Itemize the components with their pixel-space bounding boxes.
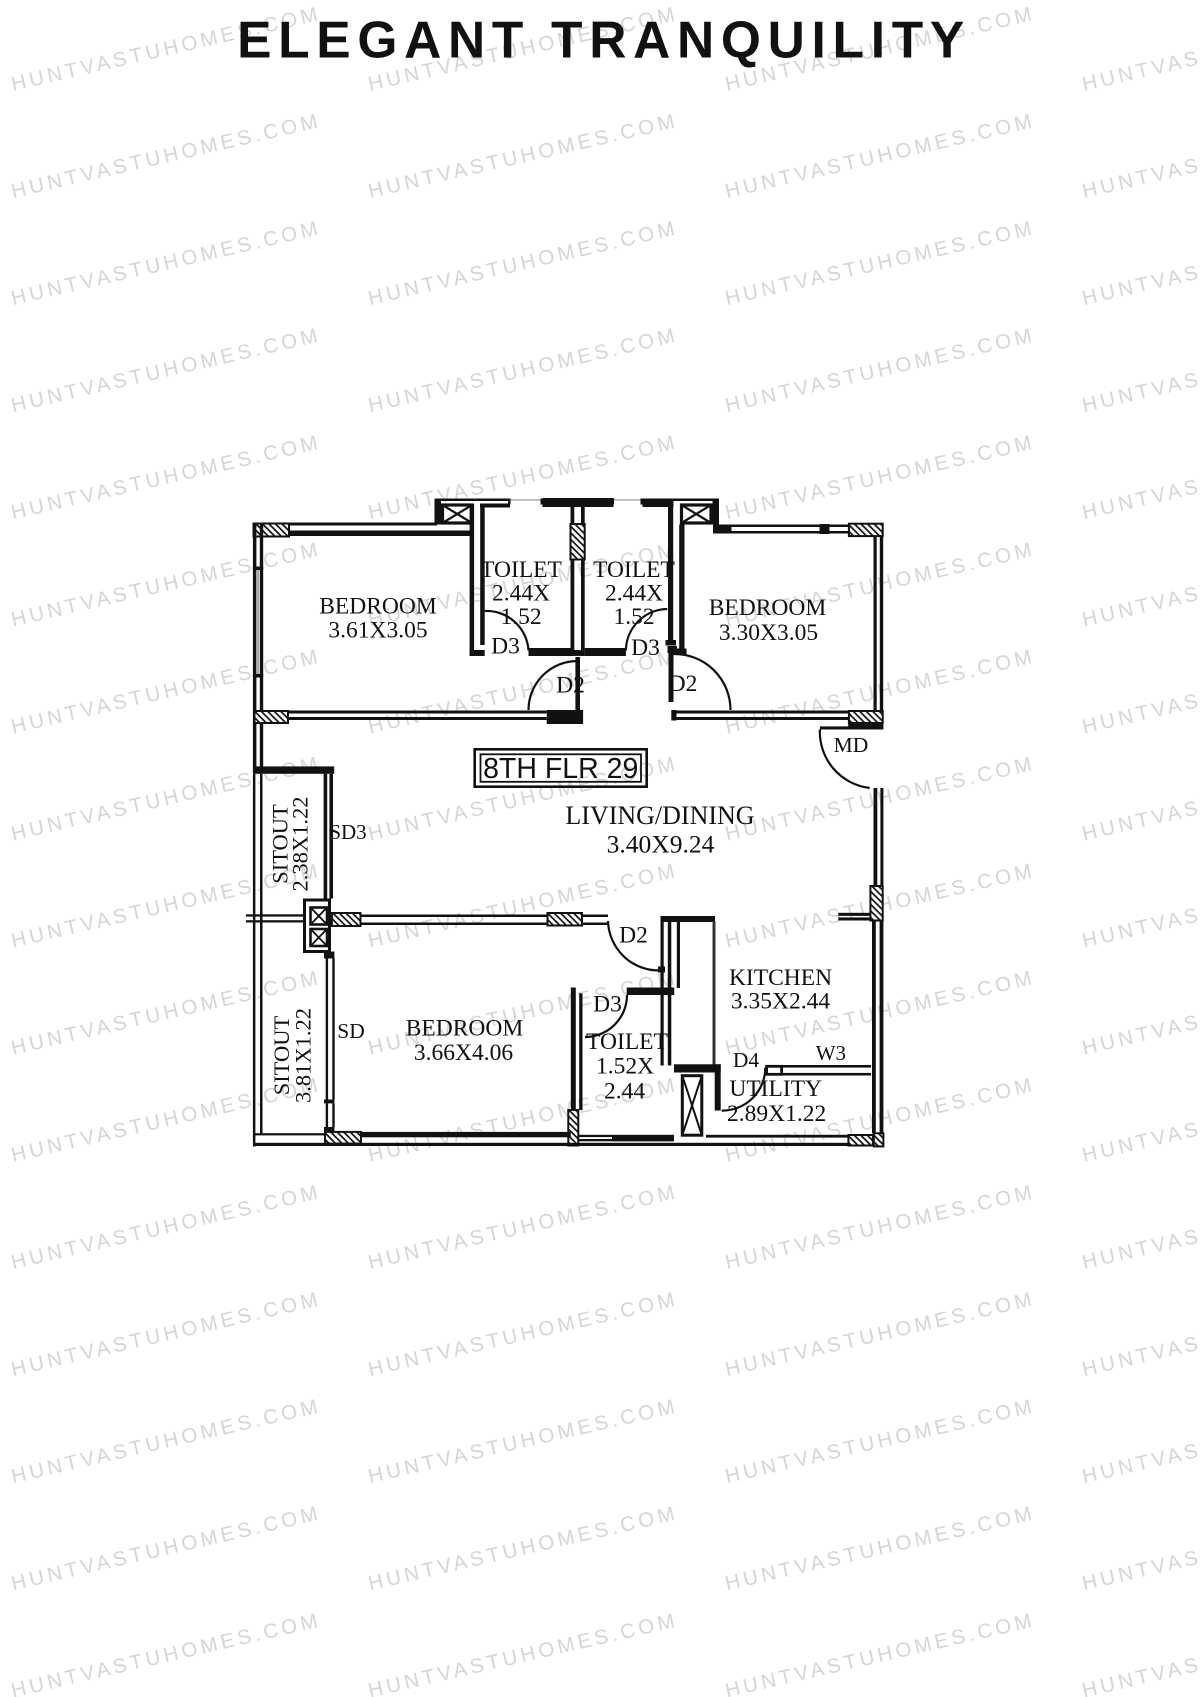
svg-text:HUNTVASTUHOMES.COM: HUNTVASTUHOMES.COM (1080, 1287, 1200, 1381)
svg-text:HUNTVASTUHOMES.COM: HUNTVASTUHOMES.COM (366, 109, 680, 203)
svg-text:D2: D2 (556, 673, 585, 699)
svg-text:HUNTVASTUHOMES.COM: HUNTVASTUHOMES.COM (1080, 645, 1200, 739)
svg-text:3.81X1.22: 3.81X1.22 (291, 1008, 316, 1103)
svg-text:3.40X9.24: 3.40X9.24 (607, 830, 715, 859)
svg-text:HUNTVASTUHOMES.COM: HUNTVASTUHOMES.COM (1080, 1180, 1200, 1274)
svg-text:HUNTVASTUHOMES.COM: HUNTVASTUHOMES.COM (366, 1609, 680, 1697)
svg-text:HUNTVASTUHOMES.COM: HUNTVASTUHOMES.COM (366, 430, 680, 524)
svg-text:1.52: 1.52 (500, 604, 541, 630)
svg-text:HUNTVASTUHOMES.COM: HUNTVASTUHOMES.COM (723, 1287, 1037, 1381)
svg-text:TOILET: TOILET (586, 1029, 668, 1055)
svg-text:1.52: 1.52 (613, 604, 654, 630)
svg-text:HUNTVASTUHOMES.COM: HUNTVASTUHOMES.COM (723, 1394, 1037, 1488)
svg-text:SD3: SD3 (329, 820, 366, 844)
svg-text:D3: D3 (631, 635, 660, 661)
svg-text:W3: W3 (816, 1041, 846, 1065)
svg-text:ELEGANT TRANQUILITY: ELEGANT TRANQUILITY (237, 11, 971, 69)
svg-text:2.89X1.22: 2.89X1.22 (727, 1101, 826, 1127)
svg-text:2.38X1.22: 2.38X1.22 (288, 797, 313, 892)
svg-text:BEDROOM: BEDROOM (319, 594, 437, 620)
svg-text:8TH FLR 29: 8TH FLR 29 (483, 753, 638, 785)
svg-text:HUNTVASTUHOMES.COM: HUNTVASTUHOMES.COM (1080, 216, 1200, 310)
svg-text:HUNTVASTUHOMES.COM: HUNTVASTUHOMES.COM (366, 216, 680, 310)
svg-text:HUNTVASTUHOMES.COM: HUNTVASTUHOMES.COM (723, 323, 1037, 417)
svg-text:HUNTVASTUHOMES.COM: HUNTVASTUHOMES.COM (723, 1501, 1037, 1595)
svg-text:UTILITY: UTILITY (729, 1076, 822, 1102)
svg-text:HUNTVASTUHOMES.COM: HUNTVASTUHOMES.COM (723, 109, 1037, 203)
svg-text:3.61X3.05: 3.61X3.05 (328, 618, 427, 644)
svg-text:KITCHEN: KITCHEN (729, 965, 832, 991)
svg-text:HUNTVASTUHOMES.COM: HUNTVASTUHOMES.COM (1080, 1394, 1200, 1488)
svg-text:HUNTVASTUHOMES.COM: HUNTVASTUHOMES.COM (9, 1287, 323, 1381)
svg-text:HUNTVASTUHOMES.COM: HUNTVASTUHOMES.COM (9, 1501, 323, 1595)
svg-text:MD: MD (834, 733, 869, 757)
svg-text:2.44X: 2.44X (605, 581, 663, 607)
svg-text:HUNTVASTUHOMES.COM: HUNTVASTUHOMES.COM (1080, 538, 1200, 632)
svg-text:1.52X: 1.52X (596, 1054, 654, 1080)
svg-text:TOILET: TOILET (480, 557, 562, 583)
svg-text:HUNTVASTUHOMES.COM: HUNTVASTUHOMES.COM (1080, 1501, 1200, 1595)
svg-text:SD: SD (337, 1019, 364, 1043)
svg-text:HUNTVASTUHOMES.COM: HUNTVASTUHOMES.COM (9, 1180, 323, 1274)
svg-text:HUNTVASTUHOMES.COM: HUNTVASTUHOMES.COM (9, 323, 323, 417)
svg-text:HUNTVASTUHOMES.COM: HUNTVASTUHOMES.COM (723, 216, 1037, 310)
svg-text:HUNTVASTUHOMES.COM: HUNTVASTUHOMES.COM (723, 1609, 1037, 1697)
svg-text:D4: D4 (733, 1048, 760, 1072)
svg-text:HUNTVASTUHOMES.COM: HUNTVASTUHOMES.COM (1080, 1073, 1200, 1167)
svg-text:HUNTVASTUHOMES.COM: HUNTVASTUHOMES.COM (9, 1394, 323, 1488)
svg-text:HUNTVASTUHOMES.COM: HUNTVASTUHOMES.COM (1080, 752, 1200, 846)
svg-text:D2: D2 (619, 923, 648, 949)
svg-text:TOILET: TOILET (593, 557, 675, 583)
svg-text:HUNTVASTUHOMES.COM: HUNTVASTUHOMES.COM (366, 1287, 680, 1381)
svg-text:HUNTVASTUHOMES.COM: HUNTVASTUHOMES.COM (1080, 859, 1200, 953)
svg-text:2.44X: 2.44X (492, 581, 550, 607)
svg-text:HUNTVASTUHOMES.COM: HUNTVASTUHOMES.COM (1080, 430, 1200, 524)
svg-text:HUNTVASTUHOMES.COM: HUNTVASTUHOMES.COM (9, 216, 323, 310)
svg-text:2.44: 2.44 (604, 1079, 645, 1105)
svg-text:D3: D3 (491, 634, 520, 660)
svg-text:HUNTVASTUHOMES.COM: HUNTVASTUHOMES.COM (9, 430, 323, 524)
svg-text:HUNTVASTUHOMES.COM: HUNTVASTUHOMES.COM (9, 1609, 323, 1697)
svg-text:HUNTVASTUHOMES.COM: HUNTVASTUHOMES.COM (1080, 1609, 1200, 1697)
svg-text:3.66X4.06: 3.66X4.06 (414, 1040, 513, 1066)
svg-text:HUNTVASTUHOMES.COM: HUNTVASTUHOMES.COM (9, 645, 323, 739)
svg-text:HUNTVASTUHOMES.COM: HUNTVASTUHOMES.COM (366, 1180, 680, 1274)
svg-text:3.30X3.05: 3.30X3.05 (719, 620, 818, 646)
svg-text:HUNTVASTUHOMES.COM: HUNTVASTUHOMES.COM (366, 1394, 680, 1488)
svg-text:HUNTVASTUHOMES.COM: HUNTVASTUHOMES.COM (723, 752, 1037, 846)
svg-text:HUNTVASTUHOMES.COM: HUNTVASTUHOMES.COM (1080, 966, 1200, 1060)
svg-text:BEDROOM: BEDROOM (406, 1016, 524, 1042)
svg-text:D2: D2 (669, 671, 698, 697)
svg-text:HUNTVASTUHOMES.COM: HUNTVASTUHOMES.COM (1080, 323, 1200, 417)
svg-text:3.35X2.44: 3.35X2.44 (731, 989, 830, 1015)
svg-text:HUNTVASTUHOMES.COM: HUNTVASTUHOMES.COM (723, 430, 1037, 524)
svg-text:BEDROOM: BEDROOM (709, 595, 827, 621)
svg-text:HUNTVASTUHOMES.COM: HUNTVASTUHOMES.COM (9, 538, 323, 632)
svg-text:HUNTVASTUHOMES.COM: HUNTVASTUHOMES.COM (723, 1180, 1037, 1274)
svg-text:D3: D3 (593, 992, 622, 1018)
svg-text:HUNTVASTUHOMES.COM: HUNTVASTUHOMES.COM (366, 323, 680, 417)
svg-text:HUNTVASTUHOMES.COM: HUNTVASTUHOMES.COM (366, 1501, 680, 1595)
svg-text:HUNTVASTUHOMES.COM: HUNTVASTUHOMES.COM (1080, 109, 1200, 203)
svg-text:LIVING/DINING: LIVING/DINING (565, 801, 754, 830)
svg-text:HUNTVASTUHOMES.COM: HUNTVASTUHOMES.COM (1080, 2, 1200, 96)
svg-text:HUNTVASTUHOMES.COM: HUNTVASTUHOMES.COM (9, 109, 323, 203)
